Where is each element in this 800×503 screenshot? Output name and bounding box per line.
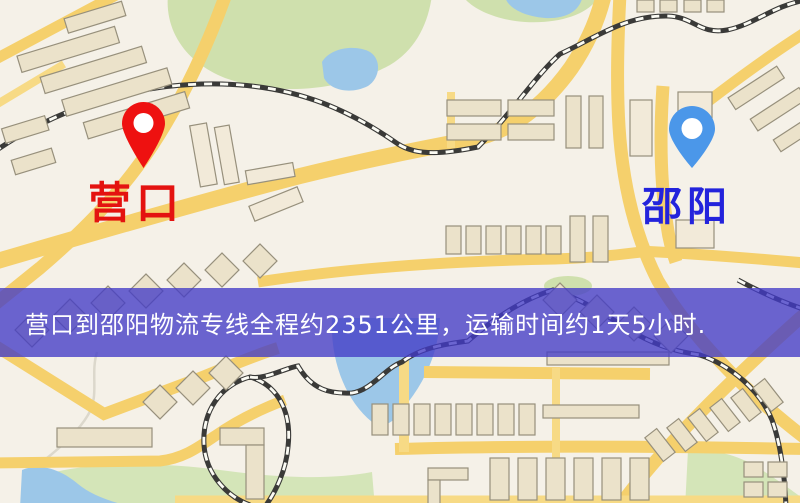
route-info-banner: 营口到邵阳物流专线全程约2351公里，运输时间约1天5小时. — [0, 288, 800, 357]
map-canvas: 营口 邵阳 — [0, 0, 800, 503]
route-info-text: 营口到邵阳物流专线全程约2351公里，运输时间约1天5小时. — [25, 305, 706, 340]
origin-city-label: 营口 — [88, 179, 184, 229]
map-screenshot: 营口 邵阳 营口到邵阳物流专线全程约2351公里，运输时间约1天5小时. — [0, 0, 800, 503]
destination-city-label: 邵阳 — [641, 184, 732, 230]
